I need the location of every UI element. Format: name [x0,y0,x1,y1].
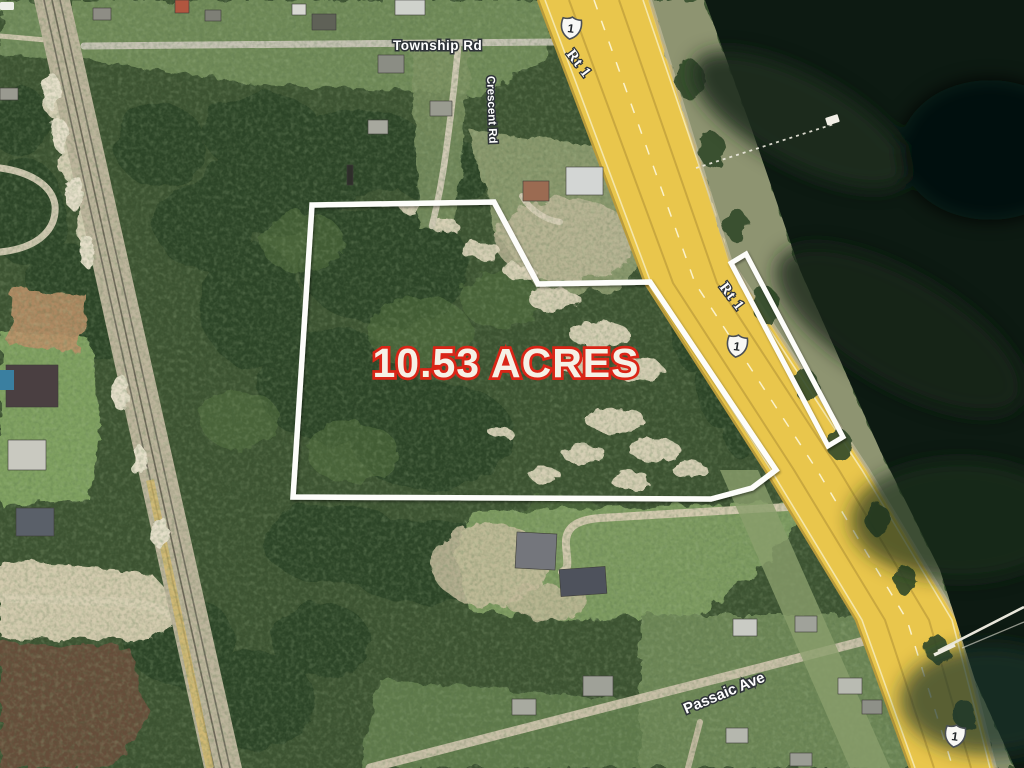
acreage-label: 10.53 ACRES [373,340,640,386]
cutoff-label-box [0,2,14,10]
crescent-rd-label: Crescent Rd [484,76,498,144]
aerial-parcel-map: Township Rd Crescent Rd Rt 1 Rt 1 Passai… [0,0,1024,768]
map-canvas: Township Rd Crescent Rd Rt 1 Rt 1 Passai… [0,0,1024,768]
township-rd-label: Township Rd [393,38,482,53]
